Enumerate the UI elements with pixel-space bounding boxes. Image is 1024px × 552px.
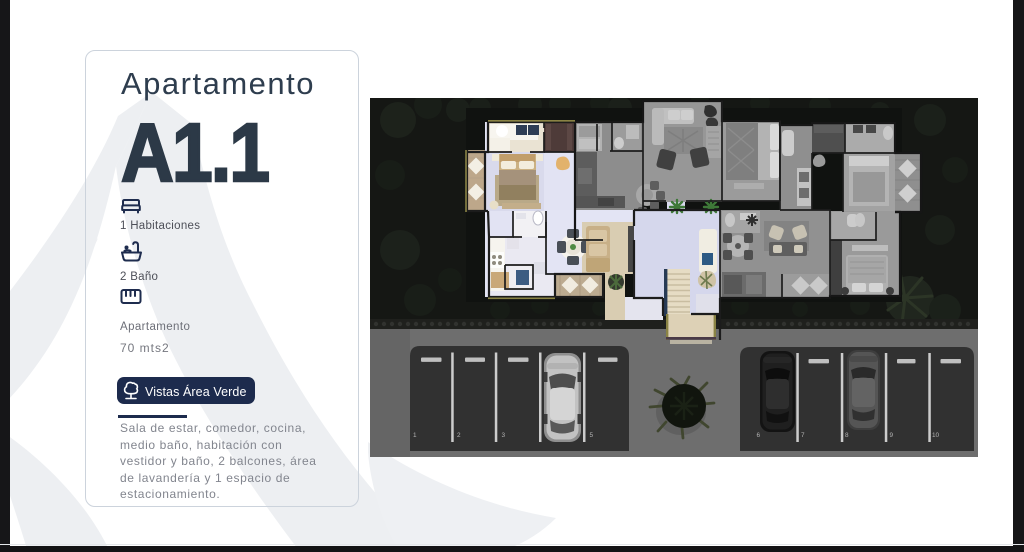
svg-text:10: 10 (932, 432, 940, 439)
svg-text:6: 6 (757, 432, 761, 439)
svg-text:5: 5 (590, 432, 594, 439)
svg-text:9: 9 (890, 432, 894, 439)
svg-text:7: 7 (801, 432, 805, 439)
svg-text:8: 8 (845, 432, 849, 439)
svg-text:2: 2 (457, 432, 461, 439)
svg-text:1: 1 (413, 432, 417, 439)
svg-text:3: 3 (502, 432, 506, 439)
